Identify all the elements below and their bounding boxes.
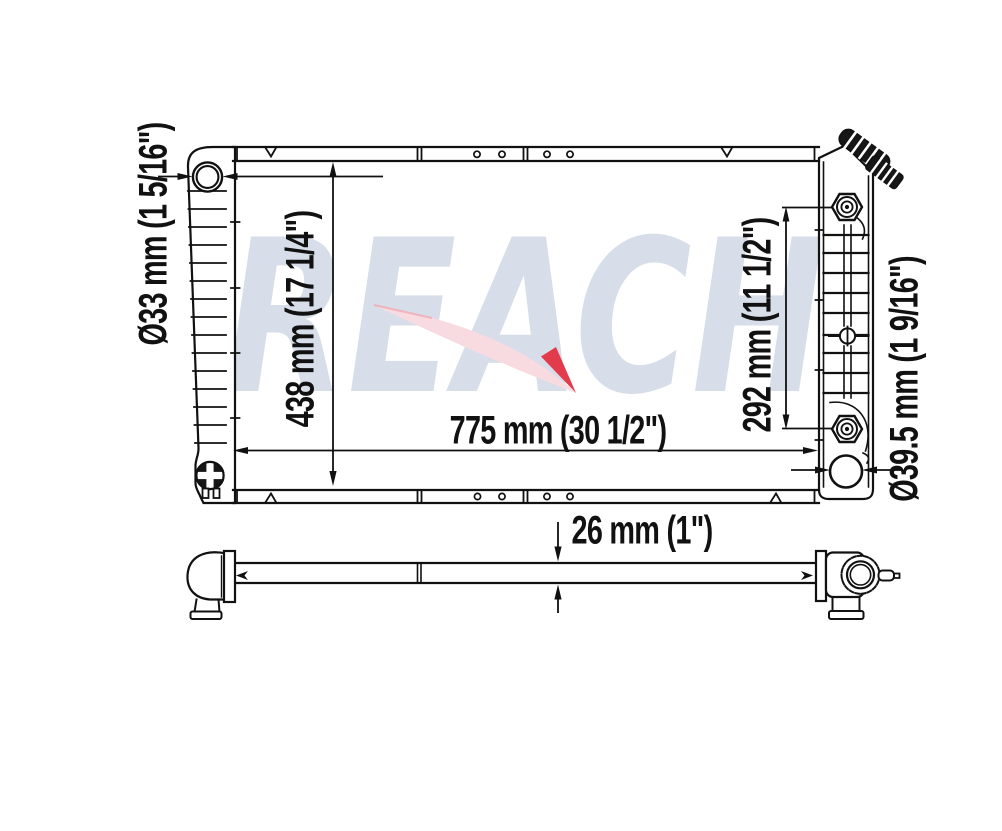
radiator-side-view [187, 551, 899, 619]
dim-label-core-width: 775 mm (30 1/2") [450, 409, 667, 454]
radiator-spec-diagram: REACH [0, 0, 1002, 831]
oil-cooler-fitting-bottom [832, 416, 862, 442]
left-tank [188, 147, 235, 503]
dim-label-core-thickness: 26 mm (1") [572, 509, 713, 554]
side-core-strip [237, 563, 817, 583]
dim-label-outlet-diameter: Ø39.5 mm (1 9/16") [883, 256, 928, 502]
side-strip-divider [418, 563, 422, 583]
side-filler-neck [816, 551, 900, 619]
dim-label-core-height: 438 mm (17 1/4") [279, 211, 324, 428]
inlet-port [193, 162, 222, 191]
side-inlet-elbow [187, 551, 235, 619]
dim-label-inlet-diameter: Ø33 mm (1 5/16") [132, 122, 177, 345]
bottom-rail [233, 490, 819, 503]
dim-label-fitting-span: 292 mm (11 1/2") [736, 217, 781, 432]
oil-cooler-fitting-top [832, 194, 862, 220]
outlet-port [830, 456, 862, 488]
